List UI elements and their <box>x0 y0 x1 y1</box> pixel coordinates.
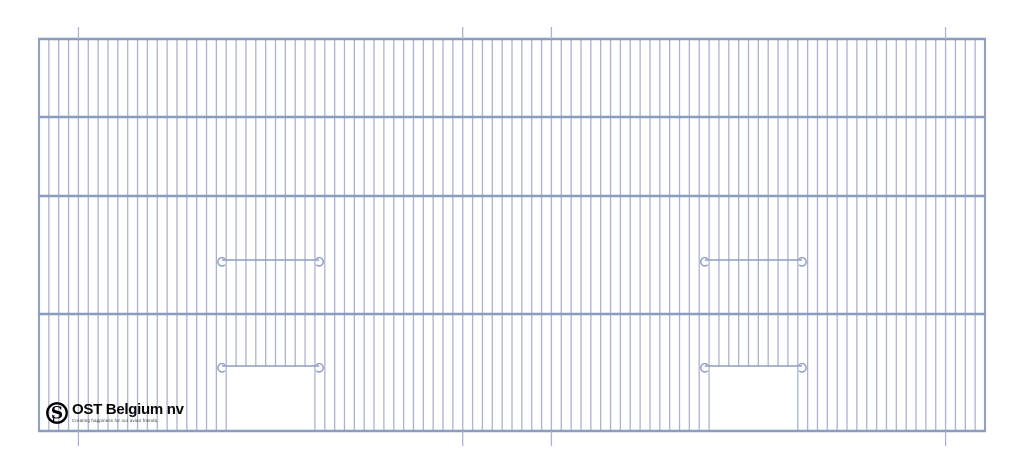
rail-hook-right <box>799 364 806 372</box>
brand-name: OST Belgium nv <box>72 403 184 417</box>
rail-hook-left <box>701 258 708 266</box>
rail-hook-left <box>218 258 225 266</box>
drawing-canvas: S J OST Belgium nv Creating happiness fo… <box>0 0 1024 473</box>
rail-hook-right <box>316 364 323 372</box>
brand-logo: S J OST Belgium nv Creating happiness fo… <box>45 400 184 426</box>
rail-hook-left <box>701 364 708 372</box>
ost-logo-mark-icon: S J <box>45 400 69 426</box>
rail-hook-left <box>218 364 225 372</box>
rail-hook-right <box>799 258 806 266</box>
logo-monogram-small: J <box>51 416 55 423</box>
wire-grid <box>39 39 985 431</box>
rail-hook-right <box>316 258 323 266</box>
brand-tagline: Creating happiness for our avian friends… <box>72 418 184 423</box>
